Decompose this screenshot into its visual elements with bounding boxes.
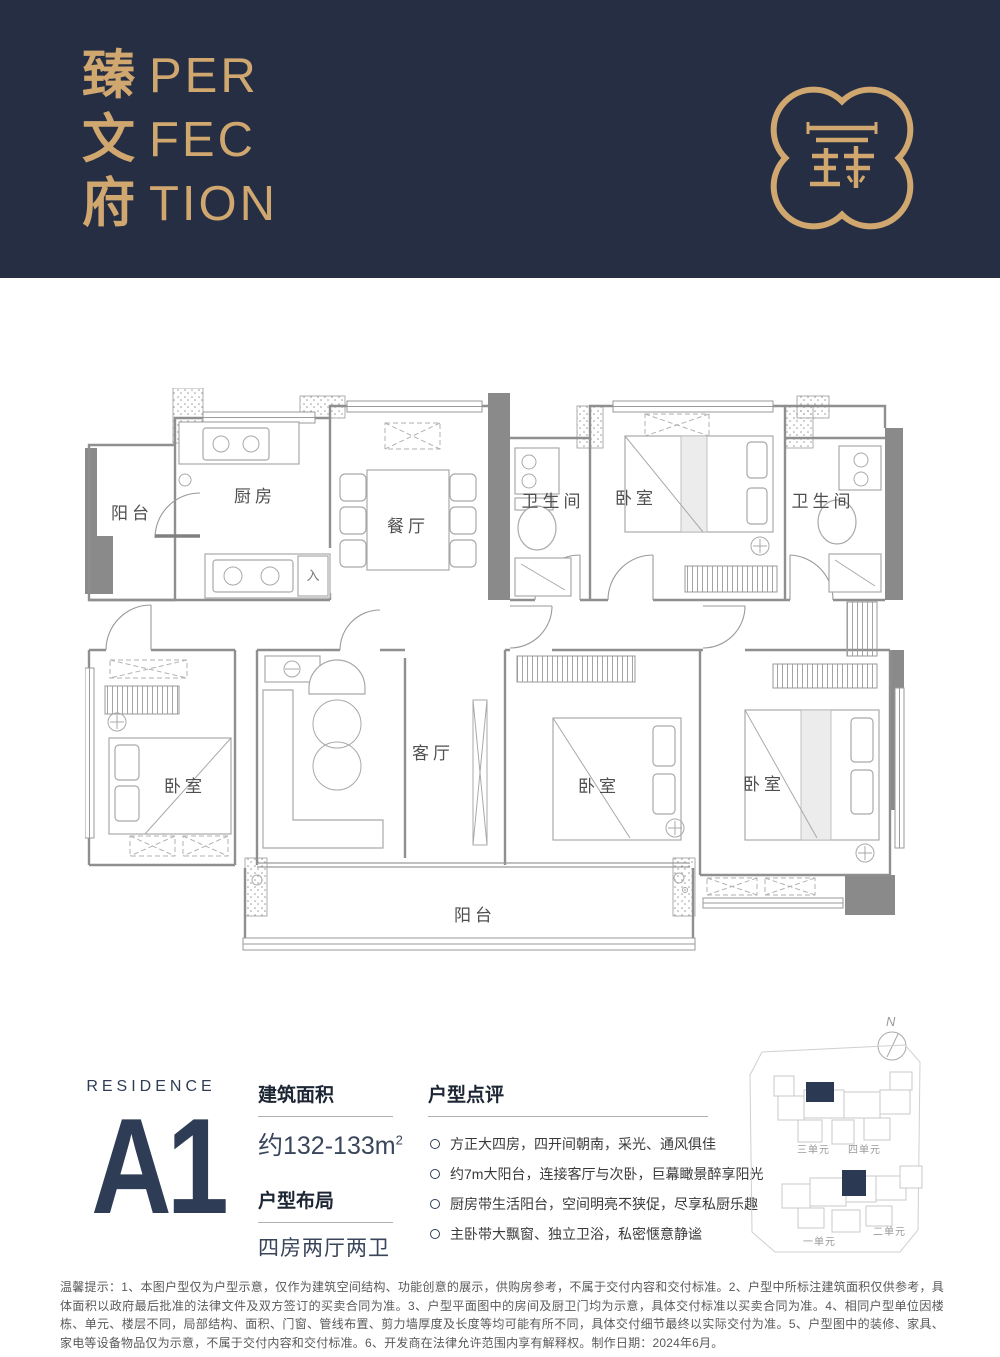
spec-area-value: 约132-133m2	[258, 1126, 408, 1162]
review-item-text: 厨房带生活阳台，空间明亮不狭促，尽享私厨乐趣	[450, 1189, 758, 1219]
review-item: 主卧带大飘窗、独立卫浴，私密惬意静谧	[428, 1219, 728, 1249]
bullet-ring-icon	[430, 1199, 440, 1209]
hero-banner: 臻 文 府 PER FEC TION	[0, 0, 1000, 278]
room-label-dining: 餐厅	[387, 517, 429, 536]
bullet-ring-icon	[430, 1169, 440, 1179]
spec-area-title: 建筑面积	[258, 1080, 393, 1117]
highlighted-unit-upper	[806, 1082, 834, 1102]
room-label-living: 客厅	[412, 744, 454, 763]
building-cluster-lower	[782, 1166, 922, 1232]
compass-north-label: N	[886, 1014, 896, 1029]
brand-en-line: PER	[149, 44, 278, 108]
brand-char: 臻	[82, 44, 135, 108]
review-title: 户型点评	[428, 1080, 708, 1117]
specs-block: 建筑面积 约132-133m2 户型布局 四房两厅两卫	[258, 1080, 408, 1286]
spec-area-number: 约132-133m	[258, 1132, 396, 1160]
logo-emblem-icon	[762, 78, 922, 238]
brand-en-line: TION	[149, 172, 278, 236]
review-item-text: 主卧带大飘窗、独立卫浴，私密惬意静谧	[450, 1219, 702, 1249]
seal-glyph	[808, 122, 876, 188]
unit-label-1: 一单元	[803, 1236, 836, 1248]
brand-en-line: FEC	[149, 108, 278, 172]
floor-plan: 入	[85, 388, 915, 1003]
review-section: 户型点评 方正大四房，四开间朝南，采光、通风俱佳 约7m大阳台，连接客厅与次卧，…	[428, 1080, 728, 1249]
spec-layout-value: 四房两厅两卫	[258, 1232, 408, 1262]
unit-label-4: 四单元	[848, 1144, 881, 1156]
spec-layout: 户型布局 四房两厅两卫	[258, 1186, 408, 1262]
bullet-ring-icon	[430, 1229, 440, 1239]
unit-label-2: 二单元	[873, 1226, 906, 1238]
room-label-bath-1: 卫生间	[522, 492, 585, 511]
room-label-bedroom-right: 卧室	[743, 775, 785, 794]
entry-mark: 入	[306, 568, 319, 583]
brand-name-en: PER FEC TION	[149, 44, 278, 236]
residence-code: A1	[91, 1098, 211, 1234]
unit-label-3: 三单元	[797, 1144, 830, 1156]
quatrefoil-outline	[774, 90, 911, 227]
room-labels: 阳台 厨房 餐厅 卫生间 卧室 卫生间 卧室 客厅 卧室 卧室 阳台	[111, 487, 855, 925]
room-label-kitchen: 厨房	[234, 487, 276, 506]
room-label-bedroom-mid: 卧室	[578, 777, 620, 796]
review-item: 厨房带生活阳台，空间明亮不狭促，尽享私厨乐趣	[428, 1189, 728, 1219]
review-item-text: 约7m大阳台，连接客厅与次卧，巨幕瞰景醉享阳光	[450, 1159, 763, 1189]
brand-char: 府	[82, 172, 135, 236]
brochure-page: 臻 文 府 PER FEC TION	[0, 0, 1000, 1357]
highlighted-unit-lower	[842, 1170, 866, 1196]
brand-lockup: 臻 文 府 PER FEC TION	[82, 44, 278, 236]
review-item: 约7m大阳台，连接客厅与次卧，巨幕瞰景醉享阳光	[428, 1159, 728, 1189]
spec-area-sup: 2	[396, 1133, 403, 1148]
review-item: 方正大四房，四开间朝南，采光、通风俱佳	[428, 1129, 728, 1159]
bullet-ring-icon	[430, 1139, 440, 1149]
room-label-balcony-bottom: 阳台	[454, 906, 496, 925]
review-list: 方正大四房，四开间朝南，采光、通风俱佳 约7m大阳台，连接客厅与次卧，巨幕瞰景醉…	[428, 1129, 728, 1249]
spec-area: 建筑面积 约132-133m2	[258, 1080, 408, 1162]
brand-name-cn: 臻 文 府	[82, 44, 135, 236]
residence-block: RESIDENCE A1	[78, 1078, 224, 1234]
room-label-bath-2: 卫生间	[792, 492, 855, 511]
room-label-bedroom-top: 卧室	[615, 489, 657, 508]
brand-char: 文	[82, 108, 135, 172]
spec-layout-title: 户型布局	[258, 1186, 393, 1223]
building-cluster-upper	[774, 1072, 912, 1144]
site-map: N 三单元 四单元	[740, 1008, 990, 1258]
room-label-balcony-top: 阳台	[111, 504, 153, 523]
disclaimer-text: 温馨提示：1、本图户型仅为户型示意，仅作为建筑空间结构、功能创意的展示，供购房参…	[60, 1278, 944, 1352]
review-item-text: 方正大四房，四开间朝南，采光、通风俱佳	[450, 1129, 716, 1159]
room-label-bedroom-left: 卧室	[164, 777, 206, 796]
